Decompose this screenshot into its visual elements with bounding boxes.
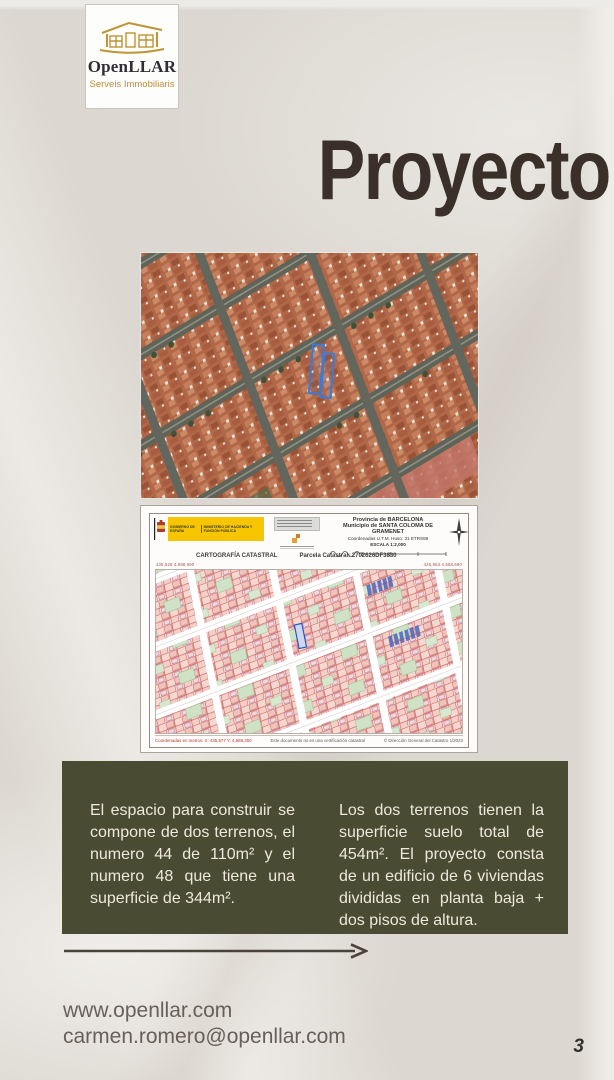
website-link[interactable]: www.openllar.com [63, 998, 346, 1024]
coord-top-left: 435,528 4,588,690 [156, 562, 194, 567]
spain-crest-icon [154, 517, 168, 541]
coordinates-label: Coordenadas U.T.M. Huso: 31 ETRS89 [328, 536, 448, 541]
ministry-label: MINISTERIO DE HACIENDA Y FUNCIÓN PÚBLICA [201, 525, 264, 533]
scale-label: ESCALA 1:2,000 [328, 542, 448, 547]
catastro-icon [292, 534, 302, 544]
info-left-paragraph: El espacio para construir se compone de … [90, 800, 295, 934]
email-link[interactable]: carmen.romero@openllar.com [63, 1024, 346, 1050]
office-address-box [274, 517, 320, 531]
footer-coordinates: Coordenadas en metros: X: 435,577 Y: 4,5… [155, 738, 252, 743]
house-icon [99, 19, 165, 55]
page-number: 3 [573, 1036, 584, 1058]
page-title: Proyecto [318, 124, 610, 218]
info-right-paragraph: Los dos terrenos tienen la superficie su… [339, 800, 544, 934]
cadastral-office-block [274, 517, 320, 551]
footer-disclaimer: Este documento no es una certificación c… [271, 738, 365, 743]
cadastral-frame: GOBIERNO DE ESPAÑA MINISTERIO DE HACIEND… [149, 513, 469, 748]
catastro-caption-lines [280, 546, 314, 551]
slide-canvas: OpenLLAR Serveis Immobiliaris Proyecto [0, 0, 614, 1080]
aerial-photo [141, 253, 478, 498]
info-box: El espacio para construir se compone de … [62, 761, 568, 934]
aerial-photo-graphic [141, 253, 478, 498]
gov-label: GOBIERNO DE ESPAÑA [168, 525, 201, 533]
cadastral-map-graphic [156, 570, 462, 733]
arrow-right-icon [63, 942, 368, 965]
cadastral-meta: Provincia de BARCELONA Municipio de SANT… [328, 517, 448, 557]
openllar-logo: OpenLLAR Serveis Immobiliaris [85, 4, 179, 109]
cartografia-label: CARTOGRAFÍA CATASTRAL [196, 553, 277, 559]
footer-copyright: © Dirección General del Catastro 1/2023 [384, 738, 463, 743]
municipality-label: Municipio de SANTA COLOMA DE GRAMENET [328, 523, 448, 535]
cadastral-map-document: GOBIERNO DE ESPAÑA MINISTERIO DE HACIEND… [140, 505, 478, 753]
logo-name: OpenLLAR [88, 57, 177, 77]
cadastral-map-body [155, 569, 463, 734]
spain-government-logo: GOBIERNO DE ESPAÑA MINISTERIO DE HACIEND… [154, 517, 264, 541]
contact-block: www.openllar.com carmen.romero@openllar.… [63, 998, 346, 1051]
cadastral-subheader: CARTOGRAFÍA CATASTRAL Parcela Catastral:… [154, 553, 464, 559]
cadastral-footer: Coordenadas en metros: X: 435,577 Y: 4,5… [155, 735, 463, 745]
cadastral-header: GOBIERNO DE ESPAÑA MINISTERIO DE HACIEND… [154, 517, 464, 553]
logo-tagline: Serveis Immobiliaris [90, 79, 175, 90]
compass-icon [448, 517, 470, 547]
parcela-label: Parcela Catastral: 2702626DF3830 [299, 553, 396, 559]
coord-top-right: 435,853 4,588,690 [424, 562, 462, 567]
ministry-band: GOBIERNO DE ESPAÑA MINISTERIO DE HACIEND… [168, 517, 264, 541]
